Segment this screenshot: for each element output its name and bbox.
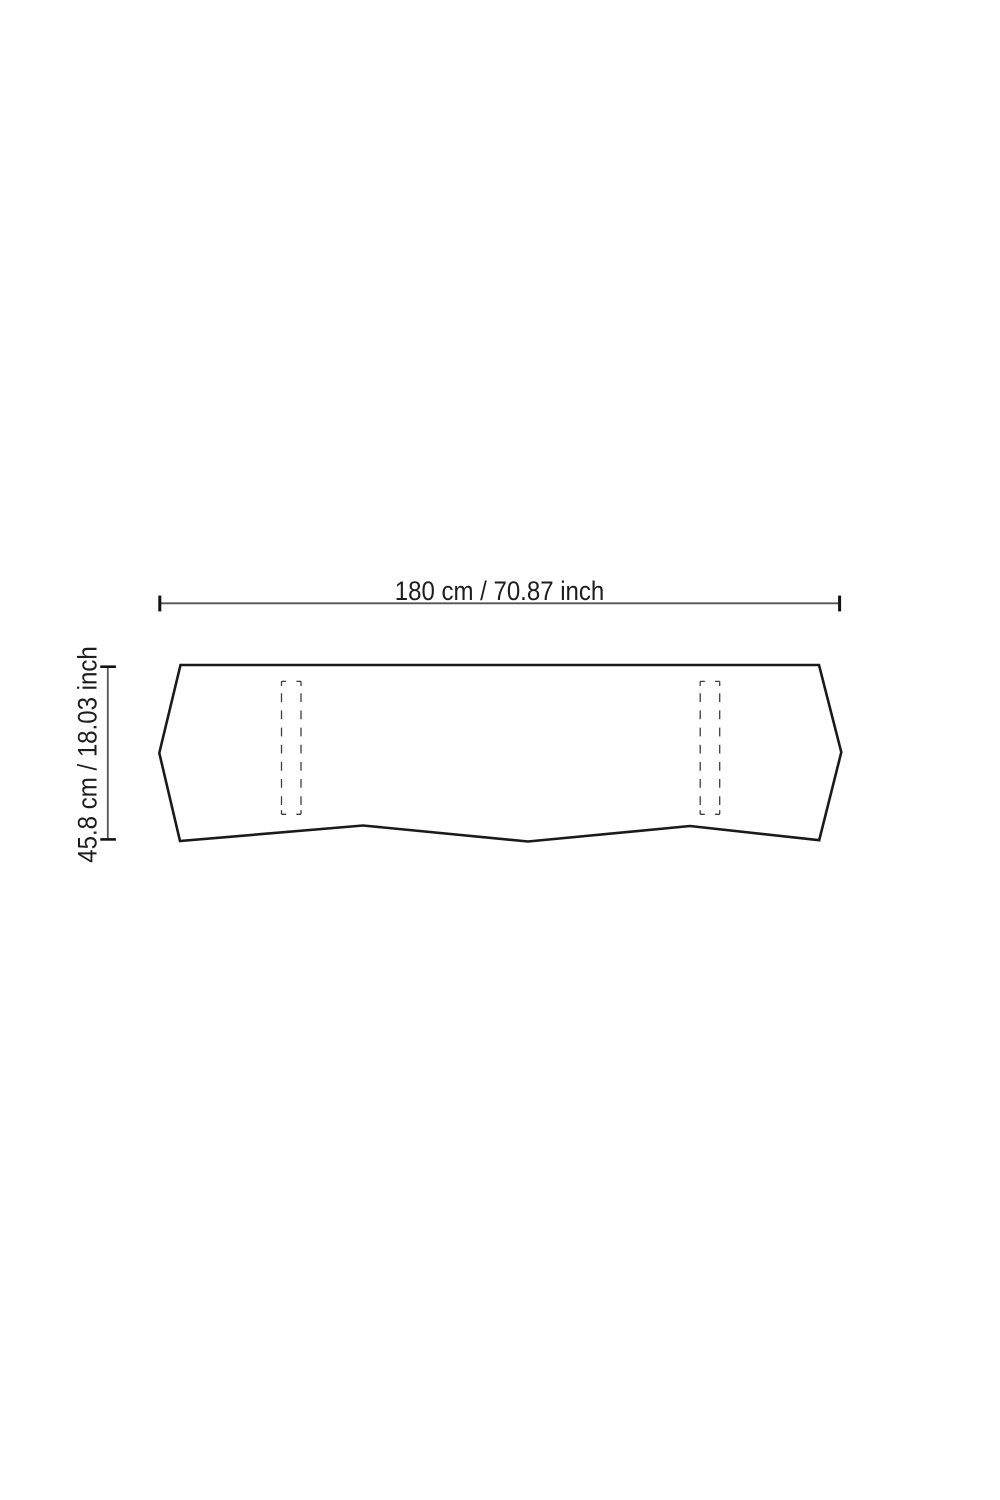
- svg-text:180 cm / 70.87 inch: 180 cm / 70.87 inch: [395, 575, 605, 606]
- svg-text:45.8 cm / 18.03 inch: 45.8 cm / 18.03 inch: [71, 646, 102, 863]
